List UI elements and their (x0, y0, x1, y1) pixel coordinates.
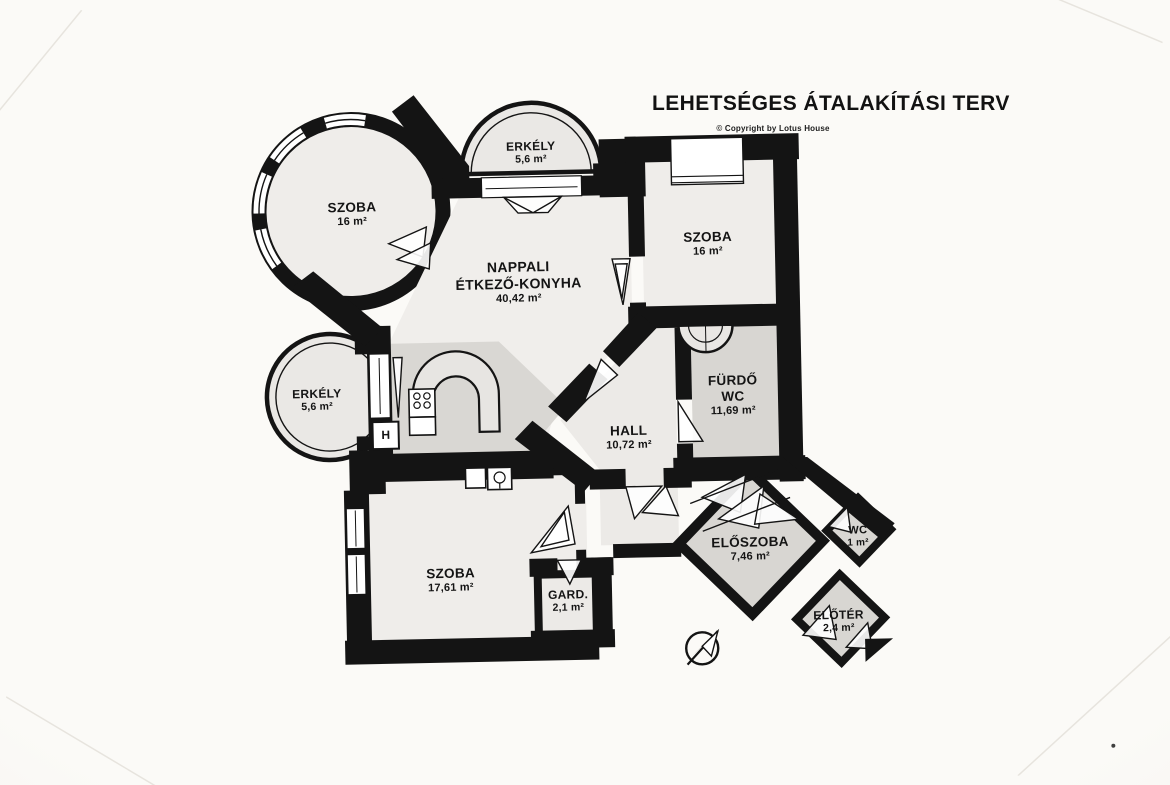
room-name: SZOBA (683, 229, 732, 246)
room-name-line2: ÉTKEZŐ-KONYHA (455, 274, 581, 293)
room-name: SZOBA (426, 565, 475, 582)
sink-left (465, 468, 485, 488)
scanned-floorplan-page: ERKÉLY 5,6 m² SZOBA 16 m² NAPPALI ÉTKEZŐ… (0, 0, 1170, 785)
room-area: 5,6 m² (506, 153, 556, 167)
room-label-szoba-tower: SZOBA 16 m² (327, 199, 376, 229)
room-area: 10,72 m² (606, 439, 652, 453)
room-name-line2: WC (708, 388, 758, 405)
room-area: 2,4 m² (813, 622, 864, 636)
entrance-direction-marker-icon (865, 638, 893, 662)
room-name: WC (847, 524, 869, 538)
room-label-eloszoba: ELŐSZOBA 7,46 m² (711, 534, 789, 565)
plan-title: LEHETSÉGES ÁTALAKÍTÁSI TERV (652, 92, 992, 116)
room-name: ERKÉLY (506, 139, 556, 154)
floorplan-wrapper: ERKÉLY 5,6 m² SZOBA 16 m² NAPPALI ÉTKEZŐ… (0, 0, 1170, 785)
room-label-szoba-bottom: SZOBA 17,61 m² (426, 565, 475, 595)
room-label-eloter: ELŐTÉR 2,4 m² (813, 607, 864, 635)
room-area: 11,69 m² (708, 405, 758, 419)
copyright-note: © Copyright by Lotus House (698, 124, 848, 133)
room-label-wc: WC 1 m² (847, 524, 869, 550)
room-area: 7,46 m² (712, 550, 790, 565)
room-name: HALL (606, 423, 652, 440)
compass-north-arrow-icon (686, 631, 719, 665)
room-name: ERKÉLY (292, 386, 342, 401)
room-name: GARD. (548, 587, 588, 602)
room-area: 16 m² (683, 245, 732, 259)
room-label-erkely-left: ERKÉLY 5,6 m² (292, 386, 342, 414)
floorplan-drawing (0, 0, 1170, 785)
room-area: 40,42 m² (456, 291, 582, 307)
room-name: FÜRDŐ (708, 372, 758, 389)
fridge-label: H (381, 428, 390, 442)
room-label-furdo: FÜRDŐ WC 11,69 m² (708, 372, 758, 419)
room-name: ELŐSZOBA (711, 534, 789, 552)
room-label-gard: GARD. 2,1 m² (548, 587, 589, 615)
scan-speck (1111, 744, 1115, 748)
room-label-szoba-right: SZOBA 16 m² (683, 229, 732, 259)
stove (409, 389, 436, 418)
room-area: 16 m² (328, 216, 377, 230)
room-area: 17,61 m² (426, 582, 475, 596)
room-name: ELŐTÉR (813, 607, 864, 622)
room-label-erkely-top: ERKÉLY 5,6 m² (506, 139, 556, 167)
room-area: 5,6 m² (292, 401, 342, 415)
room-label-nappali: NAPPALI ÉTKEZŐ-KONYHA 40,42 m² (455, 257, 582, 306)
oven (409, 417, 435, 436)
room-area: 2,1 m² (548, 602, 588, 615)
room-name: SZOBA (327, 199, 376, 216)
room-area: 1 m² (847, 537, 869, 549)
room-label-hall: HALL 10,72 m² (606, 423, 652, 453)
